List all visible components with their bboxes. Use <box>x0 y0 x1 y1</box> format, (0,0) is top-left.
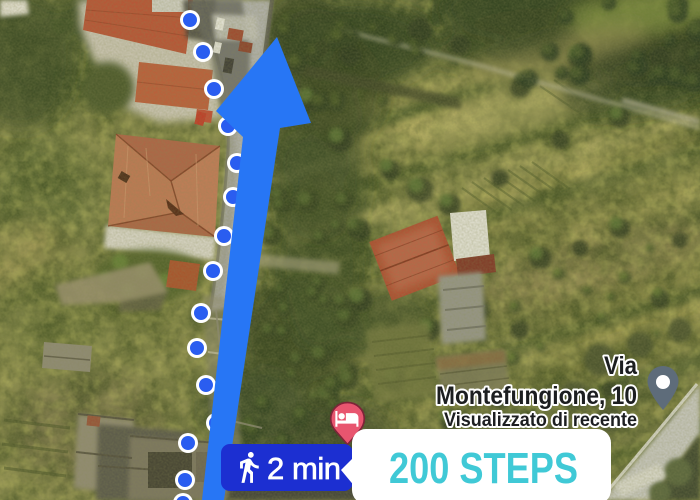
svg-text:200 STEPS: 200 STEPS <box>389 444 578 493</box>
svg-text:2 min: 2 min <box>267 451 341 486</box>
svg-text:Visualizzato di recente: Visualizzato di recente <box>444 410 637 431</box>
svg-text:Via: Via <box>604 352 638 380</box>
svg-text:Montefungione, 10: Montefungione, 10 <box>436 382 637 410</box>
